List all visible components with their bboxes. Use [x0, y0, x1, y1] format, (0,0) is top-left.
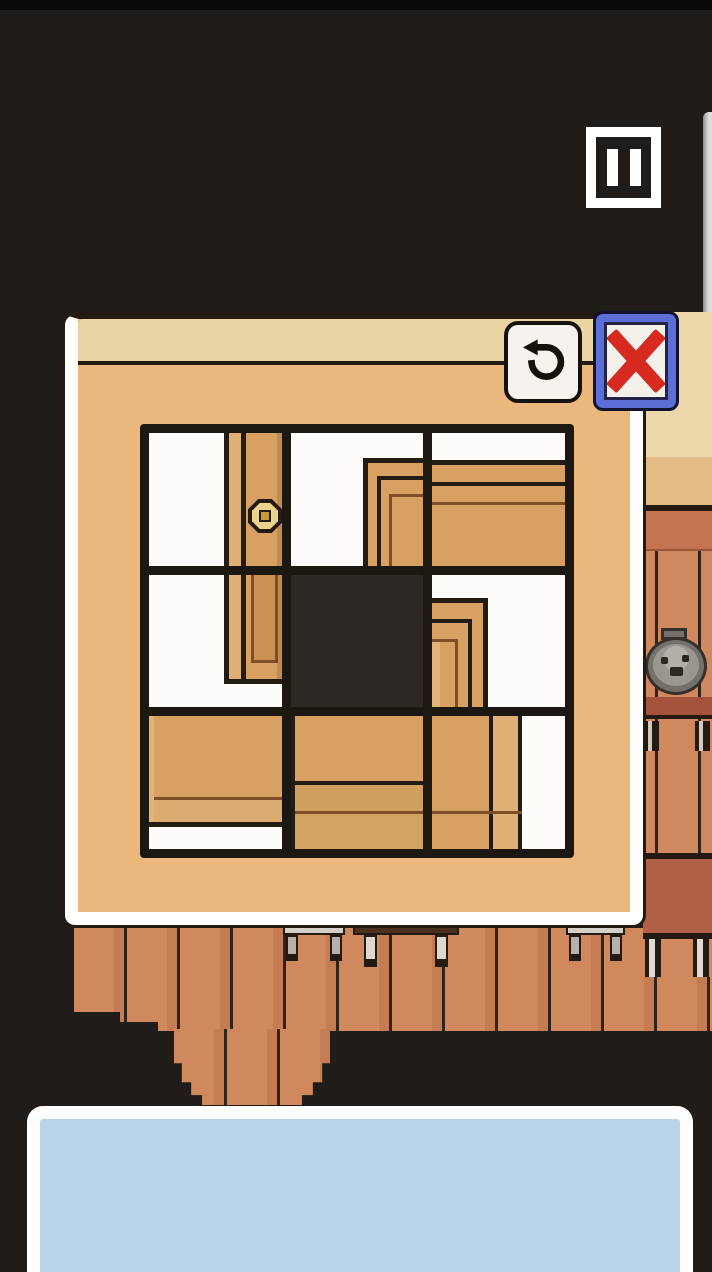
- stone-hole: [670, 667, 683, 676]
- stool-leg: [569, 935, 581, 961]
- top-letterbox-strip: [0, 0, 712, 10]
- puzzle-grid: [140, 424, 574, 858]
- close-button[interactable]: [593, 311, 679, 411]
- cabinet-bracket: [695, 721, 710, 751]
- cabinet-top-band: [643, 511, 712, 551]
- wall-step: [74, 1012, 120, 1031]
- table-silhouette: [353, 923, 459, 969]
- cabinet-shelf: [643, 697, 712, 719]
- stool-leg: [286, 935, 298, 961]
- tile-r0-c2[interactable]: [432, 433, 565, 566]
- tile-r1-c0[interactable]: [149, 575, 282, 708]
- frame-corner-art: [432, 598, 488, 708]
- top-rail-art: [432, 460, 565, 566]
- pause-icon: [607, 149, 618, 186]
- stone-face: [653, 644, 699, 686]
- stool-seat: [566, 925, 625, 935]
- stool-leg: [330, 935, 342, 961]
- frame-line: [432, 639, 458, 708]
- tile-r1-c1-hole: [291, 575, 424, 708]
- close-button-face: [604, 322, 668, 400]
- undo-rotate-icon: [519, 338, 567, 386]
- stone-hole: [682, 655, 689, 662]
- frame-line: [432, 502, 565, 505]
- game-screen: [0, 0, 712, 1272]
- pause-icon: [630, 149, 641, 186]
- board-edge-art: [149, 716, 282, 827]
- tile-r1-c2[interactable]: [432, 575, 565, 708]
- tile-r0-c1[interactable]: [291, 433, 424, 566]
- stool-seat: [283, 925, 345, 935]
- frame-line: [432, 482, 565, 486]
- door-stile-end-art: [224, 575, 282, 684]
- stool-silhouette: [283, 923, 345, 965]
- stool-silhouette: [566, 923, 625, 965]
- wall-hanging-column: [174, 1029, 330, 1105]
- door-stile-art: [224, 433, 282, 566]
- table-leg: [364, 935, 377, 967]
- tile-r0-c0[interactable]: [149, 433, 282, 566]
- stone-hole: [661, 657, 668, 664]
- undo-button[interactable]: [504, 321, 582, 403]
- wall-step: [120, 1022, 158, 1031]
- stool-leg: [610, 935, 622, 961]
- tile-r2-c1[interactable]: [291, 716, 424, 849]
- tile-r2-c0[interactable]: [149, 716, 282, 849]
- dialog-text-box[interactable]: [27, 1106, 693, 1272]
- cabinet-leg: [693, 939, 709, 977]
- cabinet-bracket: [644, 721, 659, 751]
- cabinet-drawer: [643, 859, 712, 933]
- stone-pot-lid: [645, 637, 707, 695]
- panel-board-art: [291, 716, 424, 849]
- cabinet-leg: [645, 939, 661, 977]
- tile-r2-c2[interactable]: [432, 716, 565, 849]
- inset-panel: [251, 575, 278, 663]
- table-leg: [435, 935, 448, 967]
- side-cabinet: [643, 505, 712, 977]
- pause-button[interactable]: [586, 127, 661, 208]
- door-knob-center: [259, 510, 271, 522]
- frame-corner-art: [363, 458, 424, 566]
- side-stile-art: [432, 716, 522, 849]
- frame-line: [389, 494, 424, 566]
